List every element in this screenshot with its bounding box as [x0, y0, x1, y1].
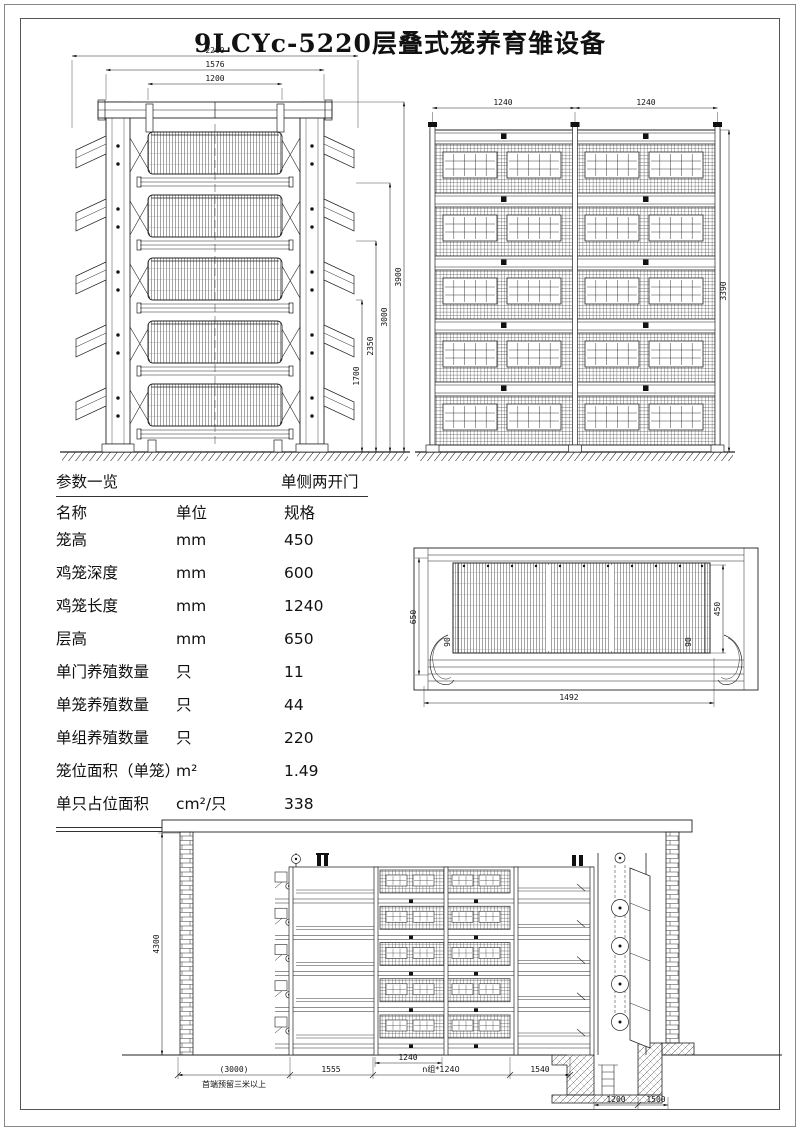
dim-label: 1200 [205, 74, 224, 83]
parameters-table: 参数一览 单侧两开门 名称 单位 规格 笼高 mm 450 鸡笼深度 mm 60… [56, 470, 368, 832]
table-row: 笼位面积（单笼） m² 1.49 [56, 759, 368, 792]
table-title: 参数一览 [56, 470, 281, 492]
dim-label: 1700 [352, 366, 361, 385]
table-row: 单笼养殖数量 只 44 [56, 693, 368, 726]
dim-label: n组*1240 [422, 1064, 459, 1074]
front-view-drawing: 1240 1240 3390 [415, 90, 735, 465]
dim-label: 1240 [398, 1053, 417, 1062]
dim-label: 1500 [646, 1095, 665, 1104]
table-row: 笼高 mm 450 [56, 528, 368, 561]
table-header-row: 名称 单位 规格 [56, 501, 368, 528]
dim-label: 1540 [530, 1065, 549, 1074]
table-title-row: 参数一览 单侧两开门 [56, 470, 368, 496]
side-view-drawing: 2260 1576 1200 1700 2350 3000 3900 [60, 40, 410, 465]
dim-label: 3000 [380, 307, 389, 326]
dim-label: (3000) [220, 1065, 249, 1074]
dim-label: 3900 [394, 267, 403, 286]
table-rule [56, 496, 368, 497]
door-type-label: 单侧两开门 [281, 470, 359, 492]
cage-detail-drawing: 650 450 1492 90 90 [406, 540, 776, 715]
dim-label: 90 [443, 637, 452, 647]
dim-label: 1240 [493, 98, 512, 107]
dim-label: 1200 [606, 1095, 625, 1104]
dim-label: 1240 [636, 98, 655, 107]
table-row: 单门养殖数量 只 11 [56, 660, 368, 693]
dim-label: 650 [409, 610, 418, 625]
table-row: 单组养殖数量 只 220 [56, 726, 368, 759]
table-row: 层高 mm 650 [56, 627, 368, 660]
dim-label: 90 [684, 637, 693, 647]
dim-label: 1492 [559, 693, 578, 702]
section-height-dim [158, 833, 180, 1055]
dim-label: 2350 [366, 336, 375, 355]
dim-label: 450 [713, 602, 722, 617]
dim-label: 2260 [205, 46, 224, 55]
table-row: 鸡笼深度 mm 600 [56, 561, 368, 594]
dim-label: 3390 [719, 281, 728, 300]
drawing-sheet: { "title": "9LCYc-5220层叠式笼养育雏设备", "table… [0, 0, 800, 1131]
dim-label: 1576 [205, 60, 224, 69]
dim-label: 1555 [321, 1065, 340, 1074]
dim-label: 4300 [152, 934, 161, 953]
installation-section-drawing: 4300 (3000) 1555 n组*1240 1540 1240 首端预留三… [122, 813, 782, 1113]
section-note: 首端预留三米以上 [202, 1079, 266, 1089]
table-row: 鸡笼长度 mm 1240 [56, 594, 368, 627]
